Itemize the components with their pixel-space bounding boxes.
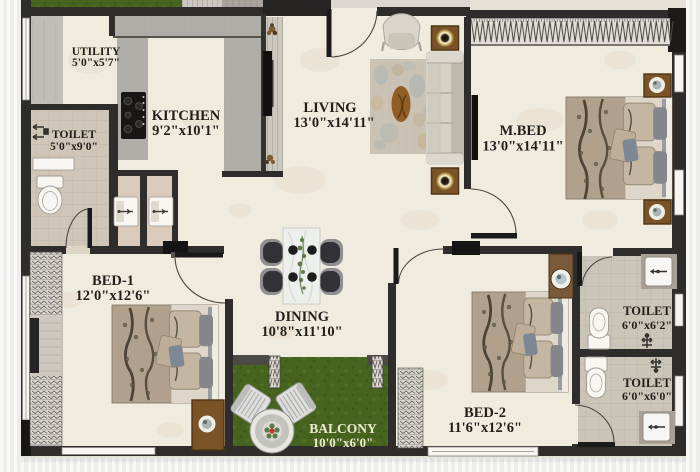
- svg-text:10'0"x6'0": 10'0"x6'0": [313, 435, 374, 450]
- svg-text:TOILET: TOILET: [623, 376, 671, 390]
- svg-text:BED-1: BED-1: [92, 273, 134, 289]
- svg-text:BALCONY: BALCONY: [309, 421, 377, 436]
- svg-text:6'0"x6'0": 6'0"x6'0": [622, 389, 672, 403]
- svg-text:DINING: DINING: [275, 309, 329, 325]
- svg-text:5'0"x9'0": 5'0"x9'0": [50, 141, 98, 153]
- svg-text:12'0"x12'6": 12'0"x12'6": [76, 288, 151, 304]
- svg-text:TOILET: TOILET: [52, 129, 96, 141]
- svg-text:TOILET: TOILET: [623, 304, 671, 318]
- svg-text:LIVING: LIVING: [303, 100, 356, 116]
- svg-text:10'8"x11'10": 10'8"x11'10": [261, 324, 342, 340]
- svg-text:BED-2: BED-2: [464, 405, 506, 421]
- svg-text:5'0"x5'7": 5'0"x5'7": [72, 57, 120, 69]
- svg-text:6'0"x6'2": 6'0"x6'2": [622, 318, 672, 332]
- svg-text:9'2"x10'1": 9'2"x10'1": [152, 123, 220, 139]
- svg-text:M.BED: M.BED: [499, 123, 546, 139]
- svg-text:13'0"x14'11": 13'0"x14'11": [293, 115, 374, 131]
- svg-text:KITCHEN: KITCHEN: [152, 108, 221, 124]
- svg-text:13'0"x14'11": 13'0"x14'11": [482, 139, 563, 155]
- svg-text:11'6"x12'6": 11'6"x12'6": [448, 420, 522, 436]
